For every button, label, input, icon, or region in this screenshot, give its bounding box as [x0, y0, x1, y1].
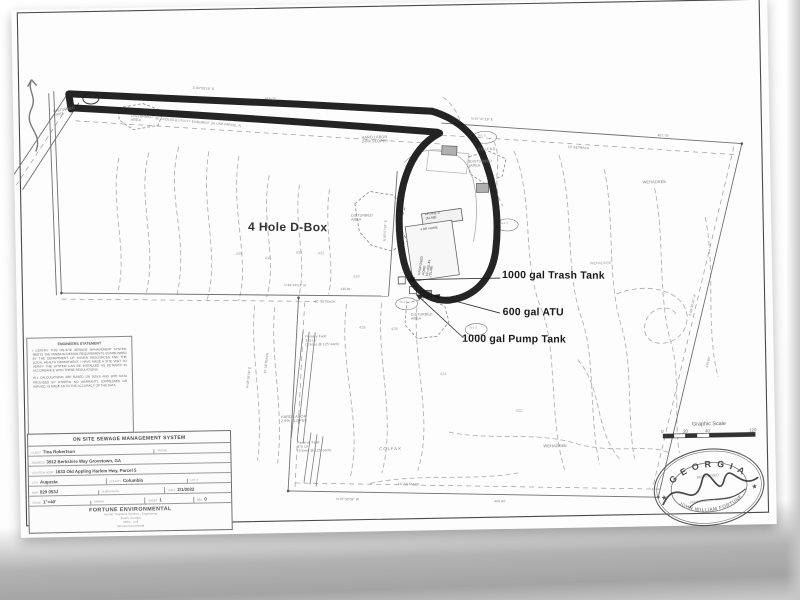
svg-text:G E O R G I A: G E O R G I A: [665, 454, 748, 486]
seal-name-text: JOHN WILLIAM FORTUNE: [678, 493, 745, 516]
map-label: 3e1-5: [478, 134, 486, 138]
city-value: Augusta: [40, 479, 58, 484]
rev-label: REV: [197, 499, 203, 502]
scale-tick-120: 120: [749, 427, 756, 432]
map-label: 3e1-5: [400, 301, 408, 305]
phone-label: PHONE: [158, 449, 168, 452]
title-block: ON SITE SEWAGE MANAGEMENT SYSTEM CLIENTT…: [27, 430, 233, 534]
map-label: WEHADKEE: [543, 444, 567, 449]
map-label: 428: [359, 326, 366, 331]
county-value: Columbia: [123, 478, 143, 483]
map-label: PROPOSED HOME FF=431.45 (SLAB): [418, 256, 436, 277]
map-label: N 84°49'51" W: [284, 284, 306, 288]
map-label: 434: [296, 251, 303, 256]
map-label: 422: [516, 409, 523, 414]
subdivision-label: SUBDIVISION: [102, 490, 119, 493]
map-label: DISTURBED AREA: [131, 114, 153, 124]
seal-star-right: ★: [751, 482, 758, 491]
map-label: 430: [353, 275, 360, 280]
map-label: 424: [440, 372, 447, 377]
map-label: 426: [391, 327, 398, 332]
client-value: Tina Robertson: [43, 449, 75, 455]
trash-tank-symbol: [398, 277, 405, 284]
photo-edge-shadow: [786, 0, 800, 600]
scale-value: 1"=40': [43, 499, 56, 504]
map-label: 3e1-5: [500, 222, 508, 226]
rev-value: 0: [204, 496, 207, 501]
map-label: WEHADKEE: [590, 261, 611, 266]
drawn-label: DRAWN: [94, 500, 104, 503]
location-value: 1633 Old Appling Harlem Hwy, Parcel 5: [55, 468, 136, 474]
pump-tank-annotation: 1000 gal Pump Tank: [462, 333, 566, 346]
map-label: 10' SETBACK: [315, 300, 336, 304]
map-label: 487.76': [657, 134, 669, 139]
map-label: 436: [265, 256, 272, 261]
map-label: 432: [318, 251, 325, 256]
map-label: 425.02': [265, 97, 277, 102]
scale-tick-40: 40: [705, 428, 710, 433]
lot-label: LOT #: [190, 479, 197, 482]
map-label: DISTURBED AREA: [470, 159, 492, 168]
map-label: 438: [236, 252, 243, 257]
client-label: CLIENT: [31, 452, 41, 455]
address-value: 3912 Berkshire Way Grovetown, GA: [46, 458, 121, 464]
map-label: MAP: [32, 492, 38, 495]
engineer-statement-para2: ALL CALCULATIONS ARE BASED ON SOILS AND …: [33, 374, 127, 388]
svg-text:JOHN WILLIAM FORTUNE: JOHN WILLIAM FORTUNE: [678, 493, 745, 516]
city-label: CITY: [32, 482, 38, 485]
engineer-seal: G E O R G I A JOHN WILLIAM FORTUNE ★ ★ R…: [647, 443, 771, 531]
location-label: LOCATION ADDR: [32, 471, 54, 474]
site-plan-page: DISTURBED AREADISTURBED AREADISTURBED AR…: [11, 0, 777, 538]
sheet-value: 1: [159, 497, 162, 502]
map-label: Primary Field 375 LF (3 lines @ 125' eac…: [305, 334, 339, 347]
map-label: HARD LABOR 2-6% SLOPES: [362, 135, 388, 144]
engineer-statement-title: ENGINEERS STATEMENT: [32, 341, 126, 347]
seal-state-text: G E O R G I A: [665, 454, 748, 486]
drain-field-lines: [289, 330, 324, 487]
scale-label: SCALE: [32, 502, 41, 505]
map-label: COLFAX: [478, 147, 496, 152]
map-label: DISTURBED AREA: [411, 312, 433, 321]
map-label: DISTURBED AREA: [351, 213, 373, 222]
map-label: 3e1-5: [469, 326, 477, 330]
map-label: 10' SETBACK: [398, 483, 420, 487]
map-label: Reserve Field 375 LF (3 lines @ 125' eac…: [297, 440, 331, 453]
county-label: COUNTY: [110, 480, 121, 483]
scale-tick-0: 0: [661, 429, 664, 434]
scanned-site-plan-photo: DISTURBED AREADISTURBED AREADISTURBED AR…: [0, 0, 800, 600]
map-label: COLFAX: [379, 447, 402, 452]
map-label: 139.81': [340, 288, 351, 292]
address-label: ADDRESS: [32, 461, 45, 464]
map-label: N 87°59'09" W: [336, 498, 359, 502]
engineer-statement-para1: I CERTIFY THIS ON-SITE SEWAGE MANAGEMENT…: [32, 347, 126, 373]
map-label: HARD LABOR 2-6% SLOPES: [281, 415, 307, 424]
scale-tick-20: 20: [683, 429, 688, 434]
company-block: FORTUNE ENVIRONMENTAL Aerobic Treatment …: [29, 503, 231, 533]
d-box-annotation: 4 Hole D-Box: [248, 220, 328, 235]
map-label: WEHADKEE: [642, 180, 666, 185]
atu-annotation: 600 gal ATU: [503, 306, 564, 318]
trash-tank-annotation: 1000 gal Trash Tank: [502, 269, 605, 282]
map-value: 029 053J: [40, 489, 58, 494]
map-label: 485.94': [494, 500, 505, 504]
date-label: DATE: [168, 489, 175, 492]
date-value: 2/1/2022: [177, 487, 194, 492]
sheet-label: SHEET: [148, 499, 157, 502]
engineer-statement-box: ENGINEERS STATEMENT I CERTIFY THIS ON-SI…: [26, 336, 134, 435]
